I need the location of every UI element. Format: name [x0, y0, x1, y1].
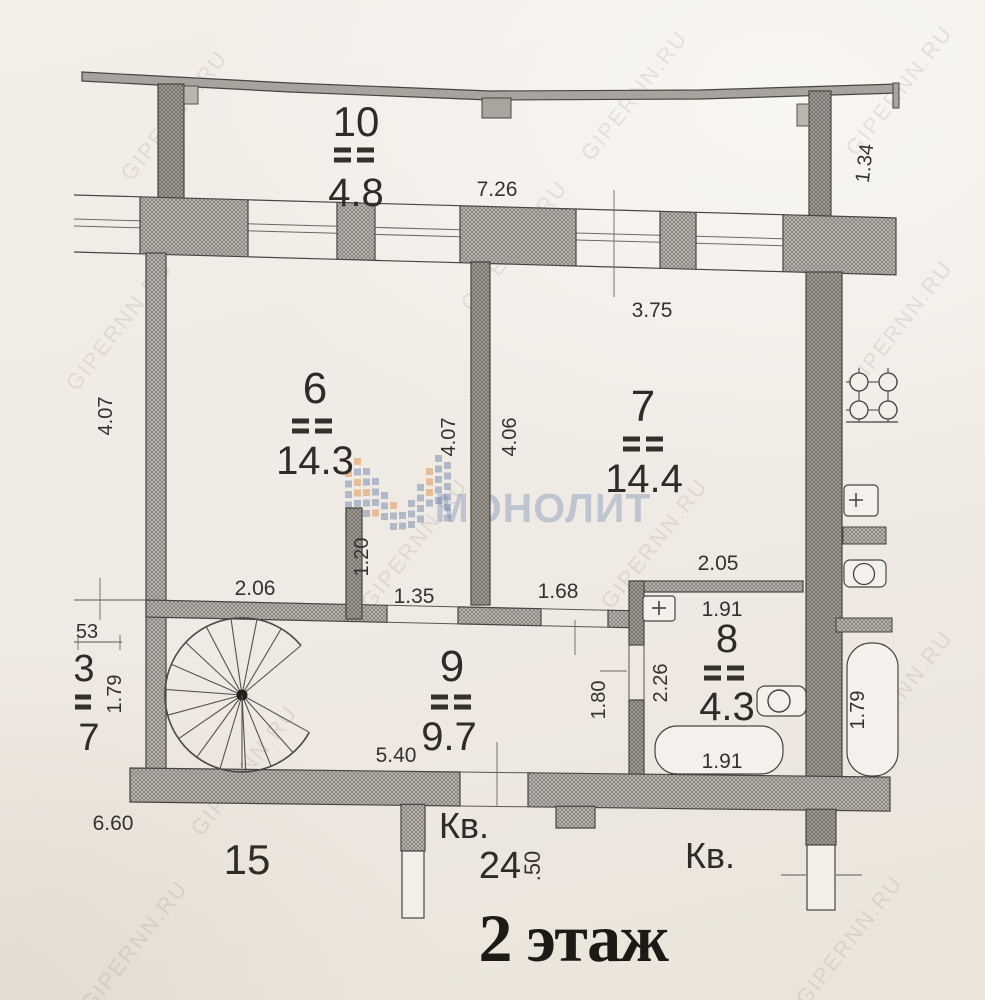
- svg-text:2 этаж: 2 этаж: [479, 900, 670, 976]
- svg-text:3.75: 3.75: [632, 299, 673, 322]
- svg-text:2.05: 2.05: [698, 552, 739, 575]
- svg-text:1.79: 1.79: [847, 691, 869, 730]
- svg-text:6.60: 6.60: [93, 812, 134, 835]
- svg-text:1.20: 1.20: [351, 538, 373, 577]
- svg-text:.50: .50: [520, 851, 545, 882]
- svg-text:GIPERNN.RU: GIPERNN.RU: [76, 875, 193, 1000]
- svg-text:53: 53: [76, 621, 98, 643]
- svg-text:2.26: 2.26: [650, 664, 672, 703]
- svg-text:9: 9: [440, 642, 464, 691]
- svg-text:1.91: 1.91: [702, 598, 743, 621]
- svg-text:Кв.: Кв.: [685, 835, 735, 876]
- svg-text:7: 7: [631, 382, 655, 431]
- svg-text:4.07: 4.07: [95, 397, 117, 436]
- svg-text:1.80: 1.80: [588, 681, 610, 720]
- svg-text:6: 6: [303, 364, 327, 413]
- svg-text:14.3: 14.3: [276, 439, 354, 483]
- svg-text:3: 3: [73, 648, 94, 690]
- svg-text:4.07: 4.07: [438, 418, 460, 457]
- svg-text:2.06: 2.06: [235, 577, 276, 600]
- svg-text:4.8: 4.8: [328, 171, 384, 215]
- svg-text:1.91: 1.91: [702, 750, 743, 773]
- svg-text:4.06: 4.06: [499, 418, 521, 457]
- svg-text:24: 24: [479, 845, 521, 887]
- svg-text:9.7: 9.7: [421, 715, 477, 759]
- svg-text:5.40: 5.40: [376, 744, 417, 767]
- svg-text:7.26: 7.26: [477, 178, 518, 201]
- svg-text:4.3: 4.3: [699, 685, 755, 729]
- svg-text:15: 15: [224, 836, 271, 883]
- svg-text:1.68: 1.68: [538, 580, 579, 603]
- svg-text:14.4: 14.4: [605, 457, 683, 501]
- svg-text:1.35: 1.35: [394, 585, 435, 608]
- svg-text:1.34: 1.34: [852, 143, 879, 184]
- svg-text:10: 10: [333, 98, 380, 145]
- svg-text:8: 8: [716, 617, 738, 661]
- svg-text:1.79: 1.79: [104, 675, 126, 714]
- svg-text:Кв.: Кв.: [439, 805, 489, 846]
- svg-text:7: 7: [78, 717, 99, 759]
